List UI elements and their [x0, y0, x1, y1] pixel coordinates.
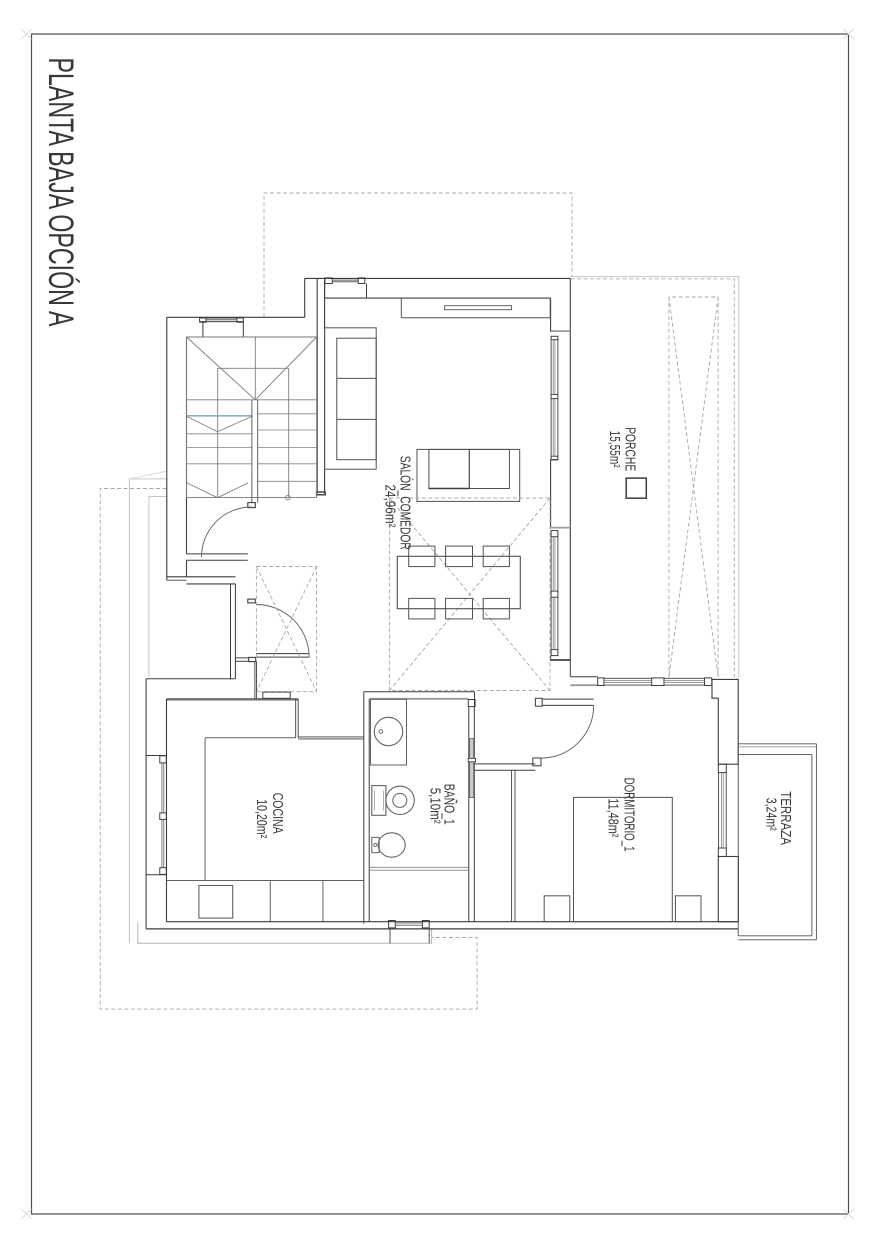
svg-text:PLANTA BAJA OPCIÓN A: PLANTA BAJA OPCIÓN A	[41, 58, 80, 327]
svg-text:3,24m²: 3,24m²	[763, 798, 779, 831]
svg-text:SALÓN_COMEDOR: SALÓN_COMEDOR	[397, 456, 414, 550]
svg-text:PORCHE: PORCHE	[622, 427, 638, 471]
svg-text:15,55m²: 15,55m²	[606, 431, 622, 468]
svg-text:DORMITORIO_1: DORMITORIO_1	[621, 778, 637, 852]
svg-text:10,20m²: 10,20m²	[253, 799, 269, 838]
svg-text:11,48m²: 11,48m²	[605, 798, 621, 837]
svg-text:COCINA: COCINA	[269, 793, 285, 834]
svg-text:5,10m²: 5,10m²	[427, 788, 443, 824]
svg-text:24,96m²: 24,96m²	[382, 485, 398, 528]
